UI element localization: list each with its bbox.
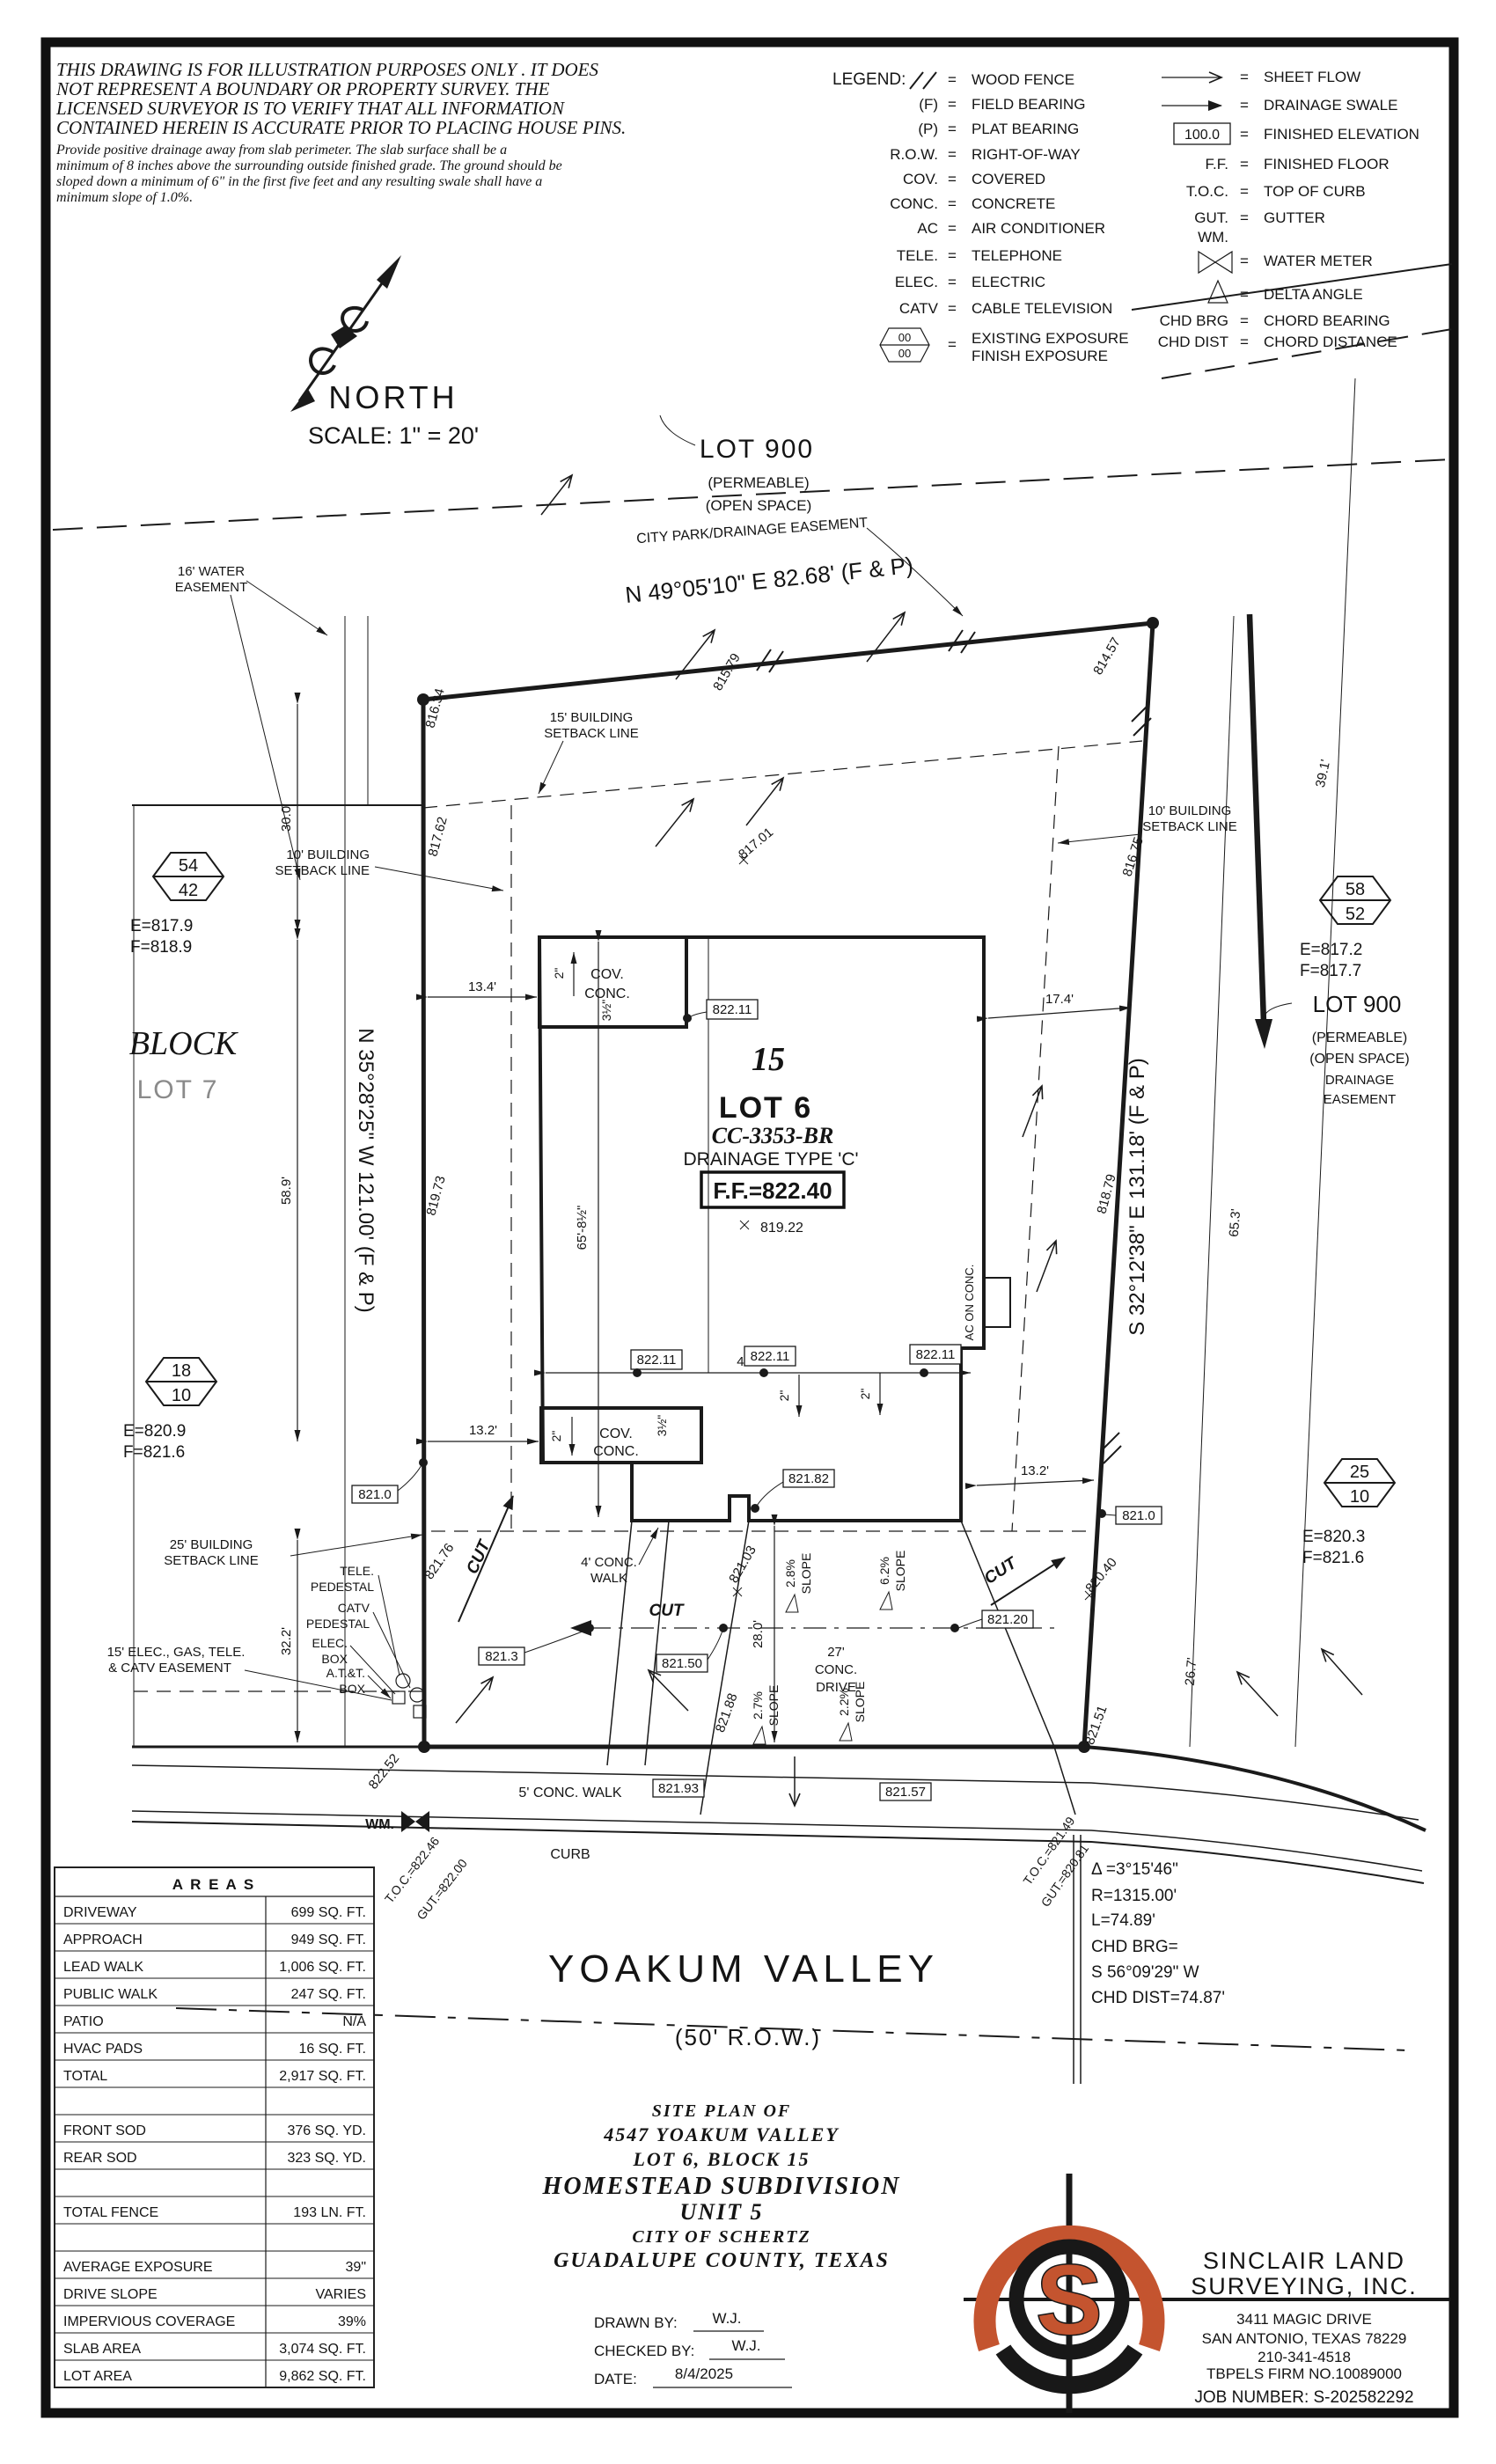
areas-row-value: 949 SQ. FT.	[291, 1932, 366, 1947]
exposure-finish: 10	[1350, 1487, 1369, 1507]
legend-def: DRAINAGE SWALE	[1264, 97, 1397, 114]
title-block: SITE PLAN OF 4547 YOAKUM VALLEY LOT 6, B…	[542, 2101, 901, 2387]
elevation-box: 822.11	[713, 1002, 752, 1017]
exposure-finish: 42	[179, 881, 198, 900]
exposure-markers: 54 42 E=817.9 F=818.9 18 10 E=820.9 F=82…	[123, 853, 1395, 1567]
legend-def: FIELD BEARING	[972, 96, 1085, 113]
dim-label: 28.0'	[751, 1620, 766, 1648]
elevation-box: 822.11	[916, 1347, 956, 1362]
water-meter-label: WM.	[365, 1817, 394, 1832]
slope-label: 2.8%	[783, 1559, 797, 1588]
legend-sym: COV.	[903, 171, 938, 187]
street-name: YOAKUM VALLEY	[548, 1947, 939, 1991]
north-arrow: NORTH SCALE: 1" = 20'	[290, 255, 479, 449]
conc-drive-label: DRIVE	[816, 1680, 856, 1695]
lot-900-permeable: (PERMEABLE)	[708, 474, 809, 491]
tele-pedestal-label: TELE.	[340, 1564, 374, 1578]
north-arrow-tail	[290, 389, 315, 412]
setback-25-label: 25' BUILDING	[170, 1537, 253, 1552]
lot-900-label: LOT 900	[700, 435, 814, 464]
legend-def: CHORD BEARING	[1264, 312, 1390, 329]
legend-def: FINISH EXPOSURE	[972, 348, 1108, 364]
boundary-corner-pin	[1147, 617, 1159, 629]
cut-label: CUT	[981, 1553, 1021, 1588]
adjacent-row-line	[1132, 264, 1452, 310]
spot-elevation: 821.76	[422, 1541, 457, 1582]
areas-row-label: FRONT SOD	[63, 2123, 146, 2138]
legend-title: LEGEND:	[832, 70, 906, 89]
spot-elevation: 820.40	[1082, 1555, 1120, 1595]
setback-10l-label: 10' BUILDING	[286, 847, 370, 862]
legend-sym: 100.0	[1184, 128, 1220, 143]
elevation-f: F=817.7	[1300, 962, 1361, 980]
legend-eq: =	[1240, 156, 1249, 172]
date-value: 8/4/2025	[675, 2365, 733, 2382]
dim-label: 13.2'	[469, 1423, 497, 1438]
setback-15-label: SETBACK LINE	[544, 726, 639, 741]
sheet-flow-arrows	[456, 475, 1362, 1806]
areas-row-value: 39"	[346, 2260, 366, 2275]
catv-pedestal-label: PEDESTAL	[306, 1617, 370, 1631]
legend-eq: =	[1240, 183, 1249, 200]
areas-row-label: DRIVE SLOPE	[63, 2287, 158, 2302]
legend-def: PLAT BEARING	[972, 121, 1079, 137]
areas-row-value: 16 SQ. FT.	[299, 2042, 366, 2057]
public-walk-bottom	[132, 1811, 1422, 1871]
surveyor-name: SINCLAIR LAND	[1203, 2248, 1405, 2274]
elec-box-label: BOX	[321, 1652, 348, 1666]
exposure-existing: 18	[172, 1361, 191, 1381]
covered-conc-label: CONC.	[593, 1444, 639, 1459]
elevation-e: E=817.2	[1300, 941, 1362, 959]
areas-row-value: 376 SQ. YD.	[287, 2123, 366, 2138]
legend-sym: ELEC.	[895, 274, 938, 290]
legend-def: TELEPHONE	[972, 247, 1062, 264]
public-walk-label: 5' CONC. WALK	[518, 1786, 621, 1800]
surveyor-block: S SINCLAIR LAND SURVEYING, INC. 3411 MAG…	[964, 2174, 1450, 2413]
legend-eq: =	[948, 300, 957, 317]
legend-def: SHEET FLOW	[1264, 69, 1360, 85]
lot-900-open-space: (OPEN SPACE)	[1309, 1052, 1410, 1067]
legend-sym: AC	[917, 220, 938, 237]
legend-def: FINISHED ELEVATION	[1264, 126, 1419, 143]
drainage-type: DRAINAGE TYPE 'C'	[683, 1149, 858, 1170]
wood-fence-marks	[757, 630, 1151, 1463]
legend-def: WATER METER	[1264, 253, 1373, 269]
legend-sym: GUT.	[1194, 209, 1228, 226]
legend-def: ELECTRIC	[972, 274, 1045, 290]
areas-row-value: 39%	[338, 2314, 366, 2329]
conc-walk-label: 4' CONC.	[581, 1555, 637, 1570]
conc-drive-label: CONC.	[815, 1662, 857, 1677]
block-label: BLOCK	[129, 1025, 238, 1062]
legend-eq: =	[948, 146, 957, 163]
north-label: NORTH	[328, 379, 458, 415]
areas-row-label: REAR SOD	[63, 2151, 137, 2166]
areas-row-value: 2,917 SQ. FT.	[279, 2069, 366, 2084]
legend-eq: =	[1240, 253, 1249, 269]
water-easement-label: EASEMENT	[175, 580, 248, 595]
spot-elevation: 817.62	[426, 815, 451, 858]
legend-eq: =	[948, 220, 957, 237]
elevation-box: 821.0	[358, 1487, 392, 1502]
setback-line-10-right	[1012, 746, 1059, 1531]
legend-sym: CONC.	[890, 195, 938, 212]
areas-row-label: TOTAL FENCE	[63, 2205, 158, 2220]
lot-7-label: LOT 7	[137, 1075, 219, 1104]
areas-row-label: SLAB AREA	[63, 2342, 141, 2357]
sheet-border	[46, 42, 1454, 2413]
legend-def: FINISHED FLOOR	[1264, 156, 1390, 172]
title-line: UNIT 5	[679, 2199, 763, 2225]
drainage-note-line: minimum of 8 inches above the surroundin…	[56, 158, 562, 173]
bearing-west-line: N 35°28'25" W 121.00' (F & P)	[354, 1028, 378, 1312]
setback-25-label: SETBACK LINE	[164, 1553, 259, 1568]
job-number: JOB NUMBER: S-202582292	[1194, 2388, 1413, 2407]
curve-data: Δ =3°15'46" R=1315.00' L=74.89' CHD BRG=…	[1091, 1860, 1225, 2007]
lot-900-open-space: (OPEN SPACE)	[706, 497, 812, 514]
legend-eq: =	[948, 96, 957, 113]
spot-elevation: 815.79	[710, 651, 744, 693]
lot-900-permeable: (PERMEABLE)	[1312, 1030, 1407, 1045]
elevation-box: 822.11	[637, 1353, 677, 1368]
disclaimer-line: THIS DRAWING IS FOR ILLUSTRATION PURPOSE…	[56, 59, 598, 80]
areas-row-label: AVERAGE EXPOSURE	[63, 2260, 213, 2275]
ac-pad	[984, 1278, 1010, 1327]
areas-row-label: LOT AREA	[63, 2369, 132, 2384]
legend-eq: =	[1240, 209, 1249, 226]
drainage-note-line: minimum slope of 1.0%.	[56, 190, 193, 205]
surveyor-phone: 210-341-4518	[1258, 2349, 1351, 2365]
water-meter-icon	[415, 1811, 429, 1832]
legend-eq: =	[1240, 126, 1249, 143]
lot-6-label: LOT 6	[719, 1091, 812, 1125]
block-number: 15	[752, 1041, 785, 1078]
legend: LEGEND: (F) (P) R.O.W. COV. CONC. AC TEL…	[832, 69, 1419, 364]
legend-sym: CHD BRG	[1160, 312, 1228, 329]
water-meter-icon	[1199, 252, 1215, 273]
boundary-corner-pin	[417, 693, 429, 706]
ac-label: AC ON CONC.	[963, 1265, 976, 1341]
row-curve	[1084, 1747, 1426, 1830]
tele-pedestal-icon	[396, 1674, 410, 1688]
public-walk-top	[132, 1765, 1419, 1820]
dim-label: 2"	[777, 1390, 791, 1402]
street-row: (50' R.O.W.)	[675, 2024, 821, 2050]
disclaimer-line: LICENSED SURVEYOR IS TO VERIFY THAT ALL …	[55, 98, 565, 119]
legend-eq: =	[1240, 69, 1249, 85]
spot-elevation: 819.22	[760, 1221, 803, 1236]
wood-fence-icon	[923, 72, 936, 89]
setback-line-15	[423, 741, 1142, 808]
spot-elevation: 822.52	[366, 1751, 403, 1793]
legend-def: AIR CONDITIONER	[972, 220, 1105, 237]
dim-label: 2"	[858, 1389, 872, 1400]
areas-row-label: LEAD WALK	[63, 1960, 143, 1975]
driveway-edge-right	[961, 1521, 1075, 1815]
utility-symbols	[392, 1674, 429, 1832]
areas-row-value: 3,074 SQ. FT.	[279, 2342, 366, 2357]
att-box-label: A.T.&T.	[326, 1666, 365, 1680]
dim-label: 13.2'	[1021, 1463, 1049, 1478]
tele-pedestal-label: PEDESTAL	[311, 1580, 374, 1594]
curb-label: CURB	[550, 1847, 590, 1862]
legend-sym: F.F.	[1206, 156, 1228, 172]
legend-eq: =	[1240, 334, 1249, 350]
wood-fence-icon	[910, 72, 923, 89]
conc-drive-label: 27'	[827, 1645, 845, 1660]
delta-angle-icon	[1208, 281, 1228, 303]
slope-label: 2.7%	[751, 1691, 765, 1720]
disclaimer-line: NOT REPRESENT A BOUNDARY OR PROPERTY SUR…	[55, 78, 550, 99]
title-line: 4547 YOAKUM VALLEY	[603, 2123, 840, 2145]
legend-def: EXISTING EXPOSURE	[972, 330, 1129, 347]
elevation-box: 821.50	[662, 1656, 702, 1671]
city-park-easement-label: CITY PARK/DRAINAGE EASEMENT	[636, 516, 869, 546]
legend-sym: T.O.C.	[1186, 183, 1228, 200]
setback-10r-label: SETBACK LINE	[1142, 819, 1237, 834]
plan-code: CC-3353-BR	[712, 1123, 834, 1148]
city-park-easement-line	[53, 459, 1452, 530]
legend-def: CONCRETE	[972, 195, 1055, 212]
elevation-e: E=820.9	[123, 1422, 186, 1441]
elevation-f: F=821.6	[1302, 1549, 1364, 1567]
water-meter-icon	[1215, 252, 1232, 273]
areas-row-value: 9,862 SQ. FT.	[279, 2369, 366, 2384]
dim-label: 58.9'	[279, 1177, 294, 1205]
areas-row-label: HVAC PADS	[63, 2042, 143, 2057]
surveyor-name: SURVEYING, INC.	[1191, 2273, 1418, 2299]
dim-label: 2"	[552, 968, 566, 979]
legend-sym: CATV	[899, 300, 939, 317]
drainage-note-line: sloped down a minimum of 6" in the first…	[56, 174, 542, 189]
legend-sym: TELE.	[897, 247, 938, 264]
elevation-e: E=820.3	[1302, 1528, 1365, 1546]
elevation-box: 821.93	[658, 1781, 699, 1796]
date-label: DATE:	[594, 2371, 637, 2387]
slope-label: SLOPE	[893, 1551, 907, 1592]
areas-row-value: 247 SQ. FT.	[291, 1987, 366, 2002]
checked-by-label: CHECKED BY:	[594, 2343, 694, 2359]
surveyor-address: SAN ANTONIO, TEXAS 78229	[1202, 2330, 1407, 2347]
areas-row-label: APPROACH	[63, 1932, 143, 1947]
exposure-hex-bot: 00	[898, 347, 911, 360]
areas-row-label: PATIO	[63, 2014, 104, 2029]
logo-s: S	[1037, 2245, 1103, 2355]
curve-chord-bearing-label: CHD BRG=	[1091, 1938, 1178, 1956]
house-labels: 15 LOT 6 CC-3353-BR DRAINAGE TYPE 'C' F.…	[584, 967, 976, 1459]
dim-label: 65'-8½"	[575, 1206, 590, 1250]
exposure-existing: 54	[179, 856, 198, 876]
title-line: HOMESTEAD SUBDIVISION	[542, 2173, 901, 2200]
legend-def: COVERED	[972, 171, 1045, 187]
scale-label: SCALE: 1" = 20'	[308, 422, 479, 449]
legend-sym: R.O.W.	[890, 146, 938, 163]
dim-label: 3½"	[655, 1415, 669, 1436]
elevation-f: F=821.6	[123, 1443, 185, 1462]
areas-table: A R E A S DRIVEWAY699 SQ. FT. APPROACH94…	[55, 1867, 374, 2387]
elevation-e: E=817.9	[130, 917, 193, 935]
disclaimer-note: THIS DRAWING IS FOR ILLUSTRATION PURPOSE…	[55, 59, 626, 205]
legend-eq: =	[948, 274, 957, 290]
areas-row-label: PUBLIC WALK	[63, 1987, 158, 2002]
elevation-box: 821.0	[1122, 1508, 1155, 1523]
drawn-by-value: W.J.	[712, 2310, 741, 2327]
legend-sym: WM.	[1198, 229, 1228, 246]
elevation-box: 821.57	[885, 1785, 926, 1800]
areas-row-label: TOTAL	[63, 2069, 107, 2084]
lot-900-label: LOT 900	[1313, 991, 1402, 1017]
curve-radius: R=1315.00'	[1091, 1887, 1177, 1905]
exposure-existing: 58	[1346, 880, 1365, 899]
legend-eq: =	[948, 171, 957, 187]
dim-label: 26.7'	[1183, 1657, 1200, 1687]
curb-line	[132, 1822, 1424, 1883]
street-labels: YOAKUM VALLEY (50' R.O.W.)	[548, 1947, 939, 2050]
setback-10r-label: 10' BUILDING	[1148, 803, 1232, 818]
areas-row-value: 323 SQ. YD.	[287, 2151, 366, 2166]
legend-eq: =	[1240, 312, 1249, 329]
elec-box-label: ELEC.	[312, 1636, 348, 1650]
exposure-finish: 10	[172, 1386, 191, 1405]
water-easement-label: 16' WATER	[178, 564, 245, 579]
covered-conc-label: COV.	[590, 967, 624, 982]
dim-label: 13.4'	[468, 979, 496, 994]
legend-eq: =	[948, 336, 957, 353]
setback-15-label: 15' BUILDING	[550, 710, 634, 725]
curve-length: L=74.89'	[1091, 1911, 1155, 1930]
legend-eq: =	[948, 247, 957, 264]
elevation-box: 822.11	[751, 1349, 790, 1364]
north-arrow-blade	[331, 326, 357, 348]
cut-label: CUT	[463, 1536, 495, 1576]
covered-conc-label: CONC.	[584, 986, 630, 1001]
legend-sym: CHD DIST	[1158, 334, 1228, 350]
cut-label: CUT	[649, 1602, 684, 1620]
spot-elevation: 816.75	[1120, 835, 1147, 878]
legend-sym: (P)	[918, 121, 938, 137]
dim-label: 2"	[549, 1431, 563, 1442]
slope-label: 6.2%	[877, 1557, 891, 1585]
att-box-label: BOX	[339, 1682, 365, 1696]
curve-chord-bearing: S 56°09'29" W	[1091, 1963, 1199, 1982]
dim-label: 39.1'	[1313, 758, 1333, 788]
exposure-existing: 25	[1350, 1463, 1369, 1482]
bearing-north-line: N 49°05'10" E 82.68' (F & P)	[624, 552, 914, 608]
dim-label: 30.0'	[279, 803, 294, 832]
areas-title: A R E A S	[172, 1876, 256, 1893]
legend-eq: =	[948, 121, 957, 137]
legend-eq: =	[1240, 97, 1249, 114]
slope-label: SLOPE	[766, 1685, 781, 1727]
drainage-easement-line	[1190, 616, 1234, 1747]
finished-floor-value: F.F.=822.40	[713, 1177, 832, 1204]
elevation-box: 821.3	[485, 1649, 518, 1664]
areas-row-value: 193 LN. FT.	[293, 2205, 366, 2220]
checked-by-value: W.J.	[731, 2337, 760, 2354]
spot-elevation: 819.73	[424, 1174, 449, 1217]
legend-def: CABLE TELEVISION	[972, 300, 1112, 317]
dim-label: 17.4'	[1045, 992, 1074, 1007]
site-plan-drawing: THIS DRAWING IS FOR ILLUSTRATION PURPOSE…	[0, 0, 1496, 2464]
utility-easement-label: 15' ELEC., GAS, TELE.	[107, 1645, 246, 1660]
areas-row-value: N/A	[342, 2014, 366, 2029]
areas-row-value: 1,006 SQ. FT.	[279, 1960, 366, 1975]
areas-row-value: 699 SQ. FT.	[291, 1905, 366, 1920]
slope-label: SLOPE	[799, 1553, 813, 1595]
areas-row-label: IMPERVIOUS COVERAGE	[63, 2314, 235, 2329]
drainage-swale-arrowhead	[1255, 1019, 1272, 1049]
dimension-texts: 30.0' 58.9' 32.2' 13.4' 17.4' 13.2' 13.2…	[279, 758, 1333, 1686]
areas-row-value: VARIES	[316, 2287, 367, 2302]
site-plan-sheet: THIS DRAWING IS FOR ILLUSTRATION PURPOSE…	[0, 0, 1496, 2464]
legend-def: CHORD DISTANCE	[1264, 334, 1397, 350]
spot-elevation: 816.34	[423, 686, 448, 730]
disclaimer-line: CONTAINED HEREIN IS ACCURATE PRIOR TO PL…	[56, 117, 626, 138]
title-line: CITY OF SCHERTZ	[632, 2227, 810, 2247]
elevation-box: 821.82	[788, 1471, 829, 1486]
legend-def: WOOD FENCE	[972, 71, 1074, 88]
title-line: LOT 6, BLOCK 15	[632, 2148, 810, 2170]
elevation-f: F=818.9	[130, 938, 192, 957]
lead-walk-edge	[645, 1521, 669, 1765]
legend-def: RIGHT-OF-WAY	[972, 146, 1081, 163]
water-meter-icon	[401, 1811, 415, 1832]
legend-def: GUTTER	[1264, 209, 1325, 226]
spot-elevation: 821.03	[726, 1544, 759, 1586]
setback-10l-label: SETBACK LINE	[275, 863, 370, 878]
catv-pedestal-label: CATV	[338, 1601, 370, 1615]
drainage-easement-label: DRAINAGE	[1325, 1073, 1394, 1088]
areas-row-label: DRIVEWAY	[63, 1905, 137, 1920]
exposure-finish: 52	[1346, 905, 1365, 924]
spot-elevation: 814.57	[1090, 635, 1124, 678]
title-line: SITE PLAN OF	[652, 2101, 791, 2121]
setback-labels: 15' BUILDING SETBACK LINE 10' BUILDING S…	[107, 564, 1237, 1696]
drainage-note-line: Provide positive drainage away from slab…	[55, 143, 507, 158]
surveyor-address: 3411 MAGIC DRIVE	[1236, 2311, 1372, 2328]
bearing-east-line: S 32°12'38" E 131.18' (F & P)	[1126, 1058, 1149, 1335]
covered-conc-label: COV.	[599, 1426, 633, 1441]
dim-label: 65.3'	[1227, 1208, 1244, 1238]
cut-lines	[458, 1496, 1065, 1636]
dim-label: 3½"	[599, 1000, 613, 1021]
legend-def: TOP OF CURB	[1264, 183, 1366, 200]
legend-eq: =	[948, 195, 957, 212]
legend-sym: (F)	[919, 96, 938, 113]
elevation-box: 821.20	[987, 1612, 1028, 1627]
title-line: GUADALUPE COUNTY, TEXAS	[554, 2249, 890, 2272]
dim-label: 32.2'	[279, 1627, 294, 1655]
legend-eq: =	[948, 71, 957, 88]
conc-walk-label: WALK	[590, 1571, 627, 1586]
curve-delta: Δ =3°15'46"	[1091, 1860, 1178, 1879]
drawn-by-label: DRAWN BY:	[594, 2314, 678, 2331]
drainage-swale-line	[1250, 614, 1264, 1023]
exposure-hex-top: 00	[898, 331, 911, 344]
drainage-easement-label: EASEMENT	[1324, 1092, 1397, 1107]
curve-chord-distance: CHD DIST=74.87'	[1091, 1989, 1225, 2007]
utility-easement-label: & CATV EASEMENT	[108, 1661, 231, 1676]
surveyor-firm-number: TBPELS FIRM NO.10089000	[1206, 2365, 1402, 2382]
spot-elevation: 817.01	[736, 825, 776, 862]
